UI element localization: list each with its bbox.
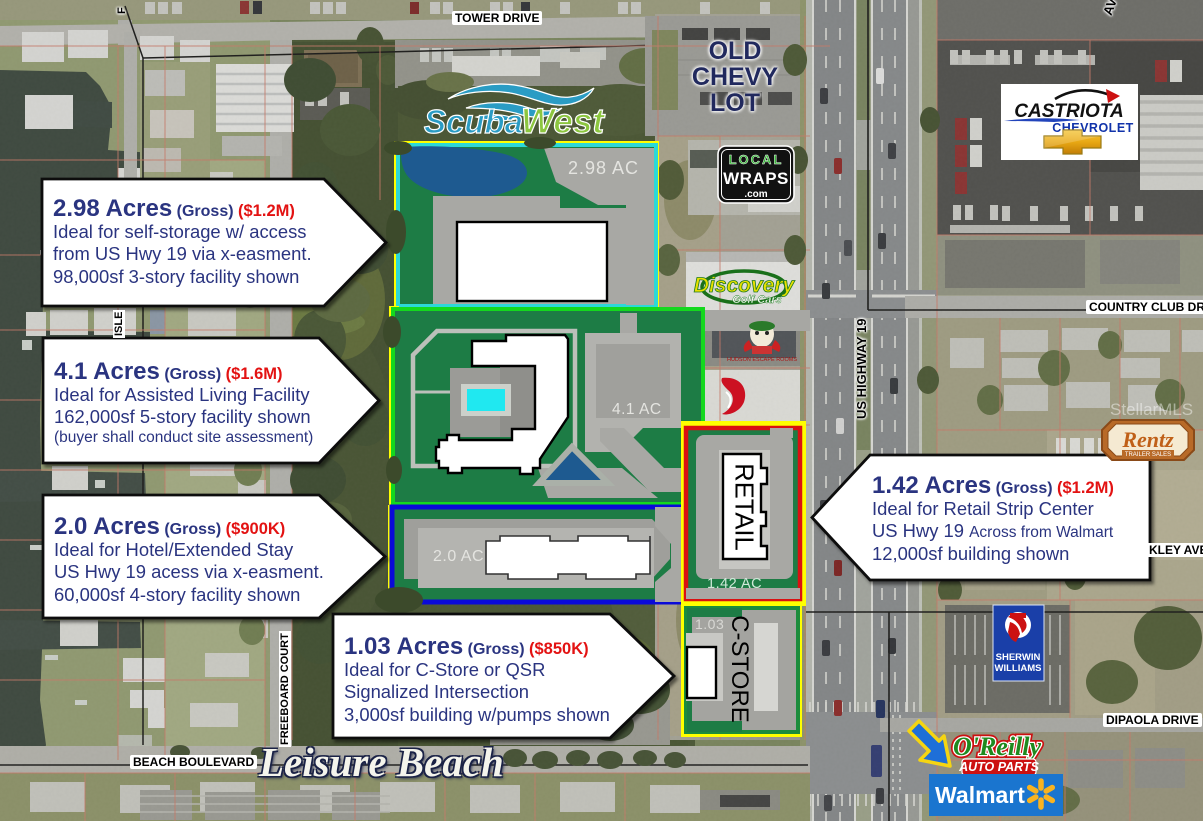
svg-text:WILLIAMS: WILLIAMS	[995, 663, 1042, 674]
svg-text:.com: .com	[744, 189, 767, 200]
svg-text:West: West	[521, 102, 605, 141]
svg-text:LOCAL: LOCAL	[729, 152, 784, 167]
svg-text:WRAPS: WRAPS	[723, 169, 789, 188]
svg-text:Walmart: Walmart	[935, 782, 1025, 808]
svg-text:Scuba: Scuba	[424, 103, 523, 140]
svg-text:AUTO PARTS: AUTO PARTS	[958, 760, 1040, 774]
svg-text:Rentz: Rentz	[1121, 427, 1174, 452]
svg-text:O'Reilly: O'Reilly	[953, 732, 1042, 761]
svg-text:TRAILER SALES: TRAILER SALES	[1125, 452, 1171, 458]
svg-text:HUDSON ESCAPE ROOMS: HUDSON ESCAPE ROOMS	[727, 357, 797, 363]
svg-text:SHERWIN: SHERWIN	[996, 652, 1041, 663]
svg-text:Golf Cars: Golf Cars	[732, 294, 782, 306]
